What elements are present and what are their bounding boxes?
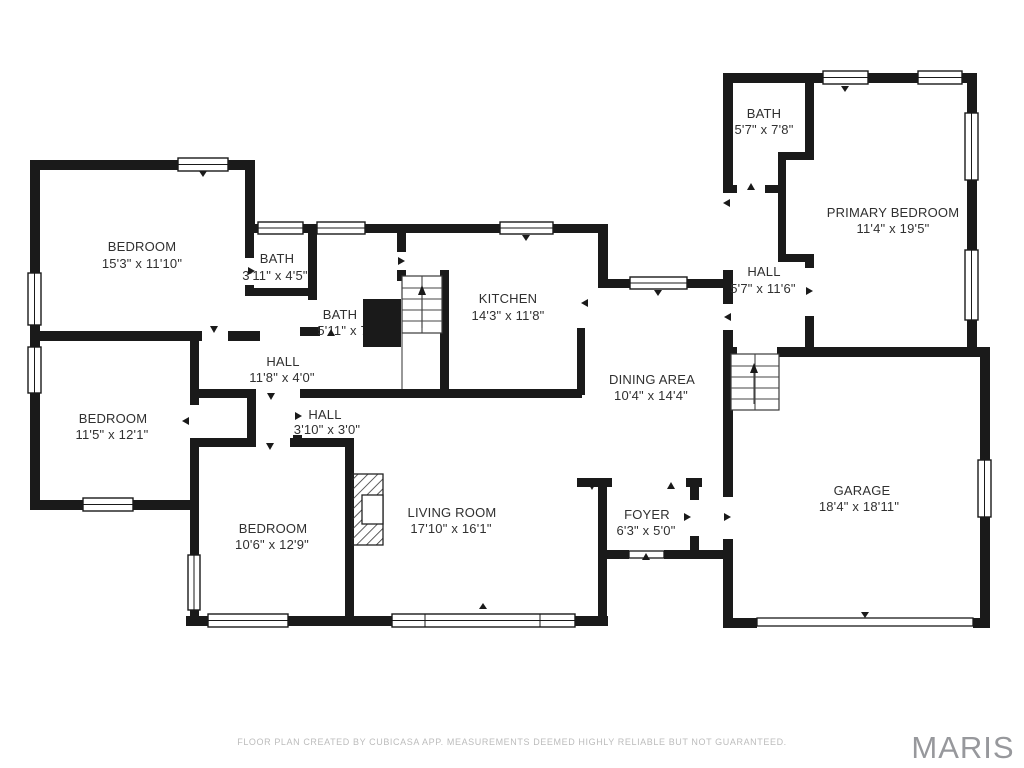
room-dims: 17'10" x 16'1" (410, 521, 492, 536)
maris-logo: MARIS (911, 730, 1014, 765)
room-dims: 6'3" x 5'0" (616, 523, 675, 538)
room-label-bath-2: BATH 5'11" x 7' (317, 307, 370, 338)
staircase-kitchen-icon (402, 276, 442, 389)
room-dims: 18'4" x 18'11" (819, 499, 900, 514)
room-dims: 3'10" x 3'0" (294, 422, 361, 437)
disclaimer-text: FLOOR PLAN CREATED BY CUBICASA APP. MEAS… (237, 737, 787, 747)
room-label-living-room: LIVING ROOM 17'10" x 16'1" (408, 505, 497, 536)
room-name: GARAGE (834, 483, 891, 498)
floor-plan-drawing: BEDROOM 15'3" x 11'10" BATH 3'11" x 4'5"… (0, 0, 1024, 768)
room-dims: 11'5" x 12'1" (76, 427, 149, 442)
staircase-garage-icon (731, 354, 779, 410)
room-label-hall-upper: HALL 5'7" x 11'6" (730, 264, 796, 296)
room-labels: BEDROOM 15'3" x 11'10" BATH 3'11" x 4'5"… (76, 106, 960, 552)
room-label-garage: GARAGE 18'4" x 18'11" (819, 483, 900, 514)
room-dims: 10'4" x 14'4" (614, 388, 688, 403)
room-label-bedroom-3: BEDROOM 10'6" x 12'9" (235, 521, 309, 552)
garage-door-icon (757, 618, 973, 626)
room-name: BATH (323, 307, 358, 322)
room-name: BEDROOM (108, 239, 177, 254)
room-label-bath-3: BATH 5'7" x 7'8" (734, 106, 793, 137)
room-label-primary-bedroom: PRIMARY BEDROOM 11'4" x 19'5" (827, 205, 960, 236)
room-dims: 11'4" x 19'5" (857, 221, 930, 236)
room-name: FOYER (624, 507, 670, 522)
floor-plan-page: BEDROOM 15'3" x 11'10" BATH 3'11" x 4'5"… (0, 0, 1024, 768)
fireplace-icon (352, 474, 383, 545)
room-dims: 14'3" x 11'8" (472, 308, 545, 323)
room-name: HALL (747, 264, 780, 279)
room-label-bedroom-2: BEDROOM 11'5" x 12'1" (76, 411, 149, 442)
room-name: PRIMARY BEDROOM (827, 205, 960, 220)
room-label-hall-main: HALL 11'8" x 4'0" (249, 354, 315, 385)
room-name: BEDROOM (79, 411, 148, 426)
room-dims: 5'11" x 7' (317, 323, 370, 338)
room-dims: 15'3" x 11'10" (102, 256, 183, 271)
room-label-bedroom-1: BEDROOM 15'3" x 11'10" (102, 239, 183, 271)
room-name: HALL (308, 407, 341, 422)
room-name: HALL (266, 354, 299, 369)
room-name: BATH (747, 106, 782, 121)
room-dims: 5'7" x 7'8" (734, 122, 793, 137)
room-name: KITCHEN (479, 291, 537, 306)
chimney-block (363, 299, 401, 347)
room-dims: 10'6" x 12'9" (235, 537, 309, 552)
room-label-hall-small: HALL 3'10" x 3'0" (294, 407, 361, 437)
room-name: LIVING ROOM (408, 505, 497, 520)
room-label-kitchen: KITCHEN 14'3" x 11'8" (472, 291, 545, 323)
door-thresholds (629, 551, 973, 626)
room-label-dining-area: DINING AREA 10'4" x 14'4" (609, 372, 695, 403)
room-dims: 5'7" x 11'6" (730, 281, 796, 296)
room-dims: 11'8" x 4'0" (249, 370, 315, 385)
room-name: BEDROOM (239, 521, 308, 536)
room-name: DINING AREA (609, 372, 695, 387)
room-label-foyer: FOYER 6'3" x 5'0" (616, 507, 675, 538)
walls (30, 73, 990, 628)
room-name: BATH (260, 251, 295, 266)
